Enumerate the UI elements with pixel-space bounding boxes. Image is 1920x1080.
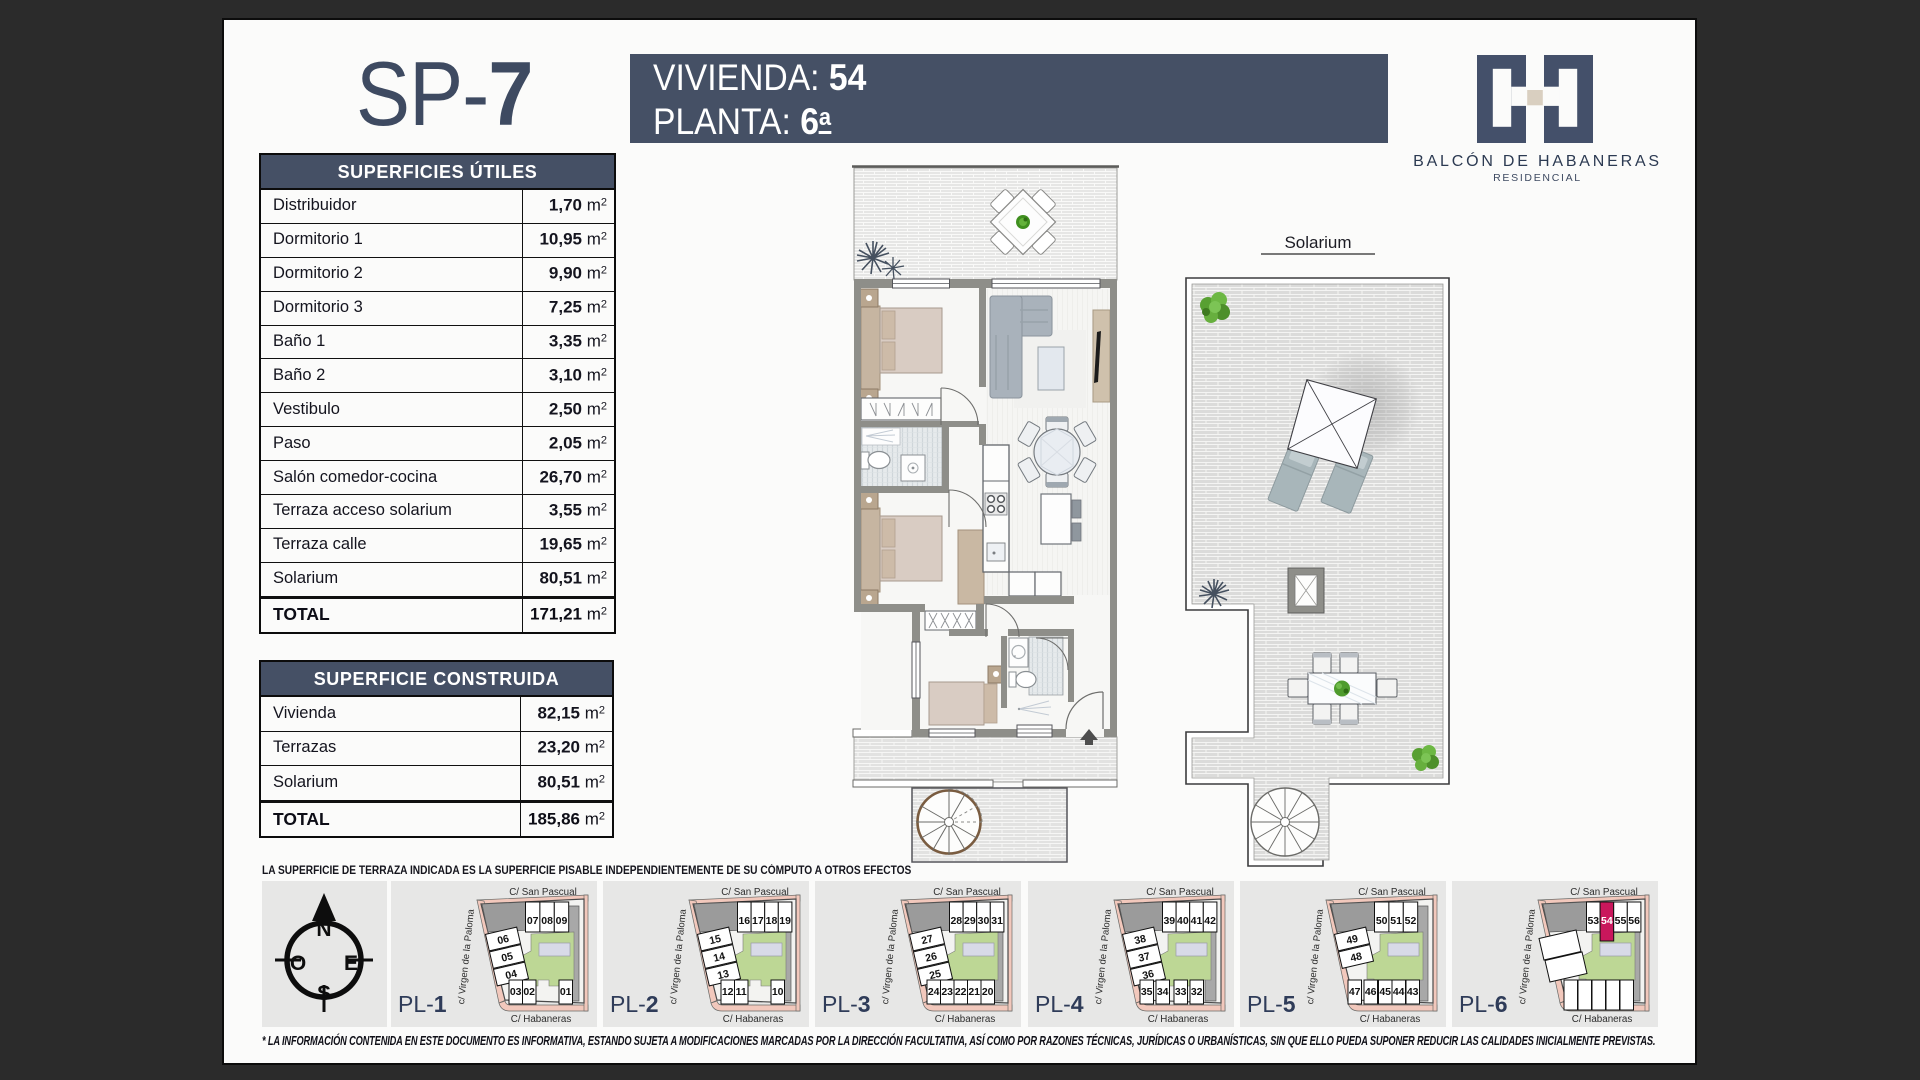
svg-text:51: 51 (1390, 915, 1402, 927)
svg-text:C/ San Pascual: C/ San Pascual (509, 887, 577, 898)
svg-text:C/ San Pascual: C/ San Pascual (1146, 887, 1214, 898)
svg-text:50: 50 (1376, 915, 1388, 927)
svg-text:10: 10 (772, 986, 784, 998)
svg-text:c/ Virgen de la Paloma: c/ Virgen de la Paloma (1305, 908, 1326, 1005)
svg-text:09: 09 (556, 915, 568, 927)
svg-text:C/ Habaneras: C/ Habaneras (511, 1014, 572, 1025)
svg-text:20: 20 (982, 986, 994, 998)
svg-text:40: 40 (1177, 915, 1189, 927)
svg-text:c/ Virgen de la Paloma: c/ Virgen de la Paloma (880, 908, 901, 1005)
svg-text:54: 54 (1601, 915, 1613, 927)
svg-text:17: 17 (752, 915, 764, 927)
svg-text:C/ Habaneras: C/ Habaneras (1148, 1014, 1209, 1025)
svg-text:C/ San Pascual: C/ San Pascual (1358, 887, 1426, 898)
svg-text:22: 22 (955, 986, 967, 998)
svg-text:01: 01 (560, 986, 572, 998)
svg-text:35: 35 (1141, 986, 1153, 998)
svg-text:N: N (316, 918, 331, 941)
svg-text:32: 32 (1191, 986, 1203, 998)
svg-text:E: E (344, 952, 358, 975)
svg-text:21: 21 (968, 986, 980, 998)
svg-text:44: 44 (1393, 986, 1405, 998)
svg-text:24: 24 (928, 986, 940, 998)
svg-text:16: 16 (738, 915, 750, 927)
svg-text:31: 31 (991, 915, 1003, 927)
svg-text:42: 42 (1204, 915, 1216, 927)
svg-text:55: 55 (1615, 915, 1627, 927)
svg-text:03: 03 (510, 986, 522, 998)
svg-text:c/ Virgen de la Paloma: c/ Virgen de la Paloma (668, 908, 689, 1005)
svg-text:19: 19 (779, 915, 791, 927)
svg-text:41: 41 (1191, 915, 1203, 927)
svg-text:28: 28 (950, 915, 962, 927)
svg-text:43: 43 (1407, 986, 1419, 998)
svg-text:07: 07 (527, 915, 539, 927)
svg-text:56: 56 (1628, 915, 1640, 927)
svg-text:08: 08 (541, 915, 553, 927)
svg-text:C/ Habaneras: C/ Habaneras (723, 1014, 784, 1025)
svg-text:30: 30 (978, 915, 990, 927)
svg-text:02: 02 (523, 986, 535, 998)
svg-text:c/ Virgen de la Paloma: c/ Virgen de la Paloma (1517, 908, 1538, 1005)
svg-text:52: 52 (1405, 915, 1417, 927)
svg-text:34: 34 (1157, 986, 1169, 998)
svg-text:23: 23 (941, 986, 953, 998)
svg-text:O: O (290, 952, 306, 975)
svg-text:29: 29 (964, 915, 976, 927)
svg-text:33: 33 (1175, 986, 1187, 998)
svg-text:c/ Virgen de la Paloma: c/ Virgen de la Paloma (1093, 908, 1114, 1005)
svg-text:12: 12 (722, 986, 734, 998)
svg-text:46: 46 (1365, 986, 1377, 998)
svg-text:c/ Virgen de la Paloma: c/ Virgen de la Paloma (456, 908, 477, 1005)
svg-text:C/ Habaneras: C/ Habaneras (935, 1014, 996, 1025)
svg-text:39: 39 (1163, 915, 1175, 927)
svg-text:C/ Habaneras: C/ Habaneras (1360, 1014, 1421, 1025)
svg-text:C/ Habaneras: C/ Habaneras (1572, 1014, 1633, 1025)
svg-text:S: S (317, 982, 331, 1005)
svg-text:RESIDENCIAL: RESIDENCIAL (1493, 172, 1582, 184)
svg-text:C/ San Pascual: C/ San Pascual (721, 887, 789, 898)
svg-text:C/ San Pascual: C/ San Pascual (1570, 887, 1638, 898)
svg-text:Solarium: Solarium (1284, 233, 1351, 252)
svg-text:47: 47 (1349, 986, 1361, 998)
svg-text:C/ San Pascual: C/ San Pascual (933, 887, 1001, 898)
svg-text:18: 18 (766, 915, 778, 927)
svg-text:53: 53 (1587, 915, 1599, 927)
svg-text:45: 45 (1379, 986, 1391, 998)
svg-text:11: 11 (736, 986, 747, 998)
